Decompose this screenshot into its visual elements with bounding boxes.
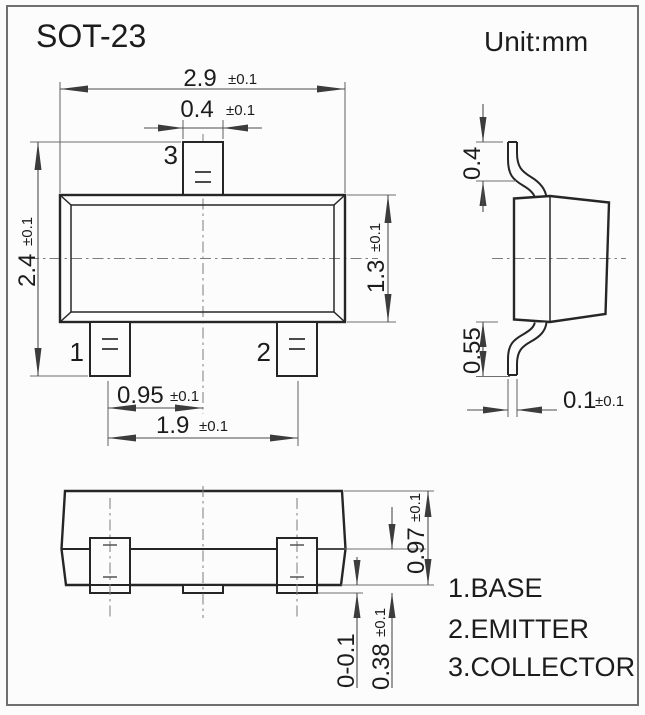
arrowhead — [35, 348, 42, 376]
top-view: 2.9 ±0.1 0.4 ±0.1 3 — [14, 65, 396, 446]
dim-overall-depth-tol: ±0.1 — [19, 217, 36, 246]
dim-lead-thickness: 0.1 ±0.1 — [467, 379, 624, 417]
lower-lead-fill — [508, 323, 547, 376]
arrowhead — [389, 593, 396, 618]
pin2-number: 2 — [257, 337, 271, 367]
arrowhead — [354, 560, 361, 585]
dim-standoff: 0-0.1 — [333, 557, 361, 688]
front-view-centerlines — [103, 486, 304, 618]
arrowhead — [480, 117, 487, 142]
dim-lead3-width-tol: ±0.1 — [226, 102, 255, 119]
arrowhead — [517, 407, 542, 414]
dim-body-height: 0.97 ±0.1 — [403, 491, 432, 585]
legend-pin2: 2.EMITTER — [448, 614, 589, 644]
arrowhead — [270, 435, 298, 442]
arrowhead — [317, 86, 345, 93]
legend-pin1: 1.BASE — [448, 573, 543, 603]
dim-upper-lead-height-value: 0.4 — [459, 147, 486, 180]
dim-body-height-value: 0.97 — [403, 527, 430, 574]
pin3-number: 3 — [164, 140, 178, 170]
lead-3 — [183, 142, 223, 195]
arrowhead — [425, 491, 432, 517]
arrowhead — [60, 86, 88, 93]
unit-label: Unit:mm — [484, 26, 588, 57]
dim-lead-offset-value: 0.95 — [117, 382, 164, 409]
dim-lead-height-tol: ±0.1 — [372, 608, 389, 637]
arrowhead — [385, 195, 392, 223]
arrowhead — [108, 435, 136, 442]
dim-lead3-width-value: 0.4 — [180, 96, 213, 123]
dim-lead-thickness-value: 0.1 — [563, 387, 596, 414]
dim-lead-height-value: 0.38 — [368, 643, 395, 690]
dim-lead3-width: 0.4 ±0.1 — [144, 96, 262, 139]
pin1-number: 1 — [70, 337, 84, 367]
dim-overall-depth-value: 2.4 — [14, 254, 41, 287]
dim-standoff-value: 0-0.1 — [333, 633, 360, 688]
arrowhead — [389, 524, 396, 549]
arrowhead — [35, 142, 42, 170]
arrowhead — [158, 125, 183, 132]
arrowhead — [385, 294, 392, 322]
dim-body-width-tol: ±0.1 — [228, 71, 257, 88]
arrowhead — [223, 125, 248, 132]
arrowhead — [483, 407, 508, 414]
dim-lead-span-tol: ±0.1 — [199, 418, 228, 435]
dim-lead-span-value: 1.9 — [156, 412, 189, 439]
dim-lead-height: 0.38 ±0.1 — [368, 507, 396, 690]
dim-body-height-tol: ±0.1 — [407, 493, 424, 522]
dim-lead-thickness-tol: ±0.1 — [595, 393, 624, 410]
dim-body-depth-tol: ±0.1 — [367, 223, 384, 252]
dim-lower-lead-height: 0.55 — [459, 322, 510, 377]
dim-lead-offset-tol: ±0.1 — [170, 388, 199, 405]
arrowhead — [354, 593, 361, 618]
drawing-page: SOT-23 Unit:mm 2.9 ±0.1 0.4 ±0.1 — [0, 0, 645, 715]
package-outline-drawing: SOT-23 Unit:mm 2.9 ±0.1 0.4 ±0.1 — [0, 0, 645, 715]
dim-lower-lead-height-value: 0.55 — [459, 327, 486, 374]
front-view: 0.97 ±0.1 0.38 ±0.1 0-0.1 — [62, 486, 435, 690]
side-view: 0.4 0.55 0.1 ±0.1 — [459, 104, 626, 417]
page-title: SOT-23 — [36, 18, 146, 54]
arrowhead — [175, 405, 203, 412]
legend-pin3: 3.COLLECTOR — [448, 652, 635, 682]
dim-body-width-value: 2.9 — [183, 65, 216, 92]
pin-legend: 1.BASE 2.EMITTER 3.COLLECTOR — [448, 573, 635, 682]
dim-body-depth-value: 1.3 — [363, 260, 390, 293]
